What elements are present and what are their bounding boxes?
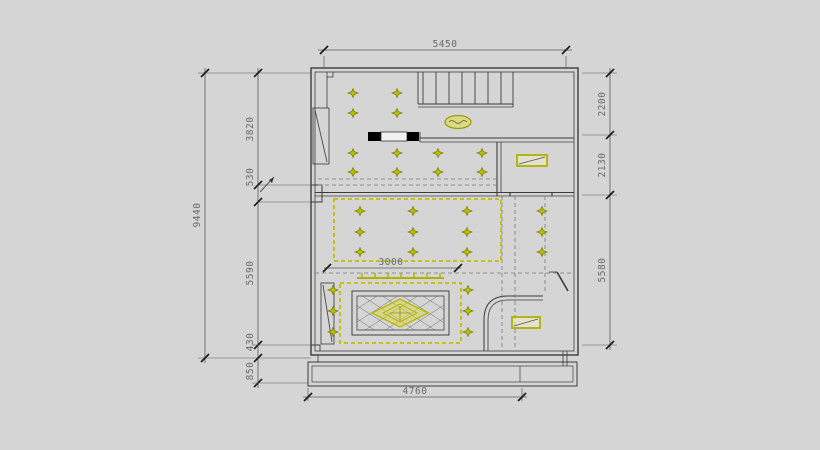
dim-label-left-3: 5590 [245, 261, 256, 286]
dimension-top: 5450 [318, 39, 572, 68]
dimension-inner: 3000 [323, 257, 462, 272]
dim-label-left-1: 3820 [245, 117, 256, 142]
dimension-bottom: 4760 [303, 386, 527, 401]
spotlight-icon [462, 228, 472, 237]
spotlight-icon [348, 149, 358, 158]
spotlight-icon [348, 168, 358, 177]
dimension-left-chain: 3820 530 5590 430 850 [245, 68, 311, 388]
spotlight-icon [537, 207, 547, 216]
door-header [368, 132, 419, 141]
spotlight-icon [433, 168, 443, 177]
dim-label-inner: 3000 [379, 257, 404, 268]
spotlight-icon [462, 207, 472, 216]
dim-label-left-5: 850 [245, 362, 256, 381]
spotlight-icon [355, 248, 365, 257]
dim-label-left-4: 430 [245, 333, 256, 352]
spotlight-icon [355, 228, 365, 237]
ceiling-plan-drawing: 5450 4760 3000 9440 3820 530 5590 430 85… [0, 0, 820, 450]
oval-ceiling-light [445, 116, 471, 129]
cad-viewport: 5450 4760 3000 9440 3820 530 5590 430 85… [0, 0, 820, 450]
dimension-right-chain: 2200 2130 5580 [582, 68, 617, 350]
dimension-left-total: 9440 [192, 68, 311, 363]
spotlight-icon [463, 286, 473, 295]
spotlight-icon [408, 228, 418, 237]
dim-label-left-total: 9440 [192, 203, 203, 228]
spotlight-icon [392, 89, 402, 98]
dim-label-bottom: 4760 [403, 386, 428, 397]
dim-label-top: 5450 [433, 39, 458, 50]
spotlight-icon [462, 248, 472, 257]
staircase [418, 72, 513, 107]
spotlight-icon [408, 207, 418, 216]
fluorescent-fixture-bottom [512, 317, 540, 328]
spotlight-icon [328, 307, 338, 316]
spotlight-icon [537, 248, 547, 257]
dim-label-right-2: 2130 [597, 153, 608, 178]
spotlight-icon [477, 168, 487, 177]
dim-label-right-1: 2200 [597, 92, 608, 117]
spotlight-icon [392, 149, 402, 158]
spotlight-icon [348, 89, 358, 98]
dim-label-left-2: 530 [245, 168, 256, 187]
lattice-ceiling-panel [340, 283, 461, 343]
spotlight-icon [433, 149, 443, 158]
spotlight-icon [392, 168, 402, 177]
spotlight-icon [463, 307, 473, 316]
linear-light-track [357, 273, 444, 278]
spotlight-icon [463, 328, 473, 337]
spotlight-icon [537, 228, 547, 237]
bottom-facade-band [308, 351, 577, 386]
spotlight-icon [477, 149, 487, 158]
spotlight-icon [348, 109, 358, 118]
fluorescent-fixture-top-room [517, 155, 547, 166]
spotlight-icon [328, 286, 338, 295]
spotlight-icon [408, 248, 418, 257]
dim-label-right-3: 5580 [597, 258, 608, 283]
spotlight-icon [355, 207, 365, 216]
spotlight-icon [392, 109, 402, 118]
